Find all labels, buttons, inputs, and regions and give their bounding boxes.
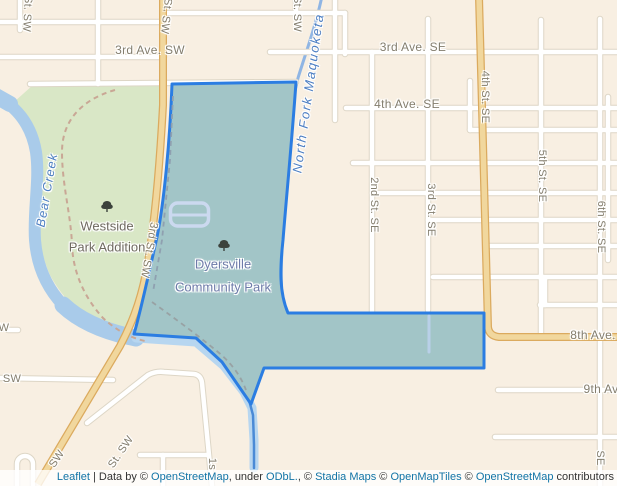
map-tiles	[0, 0, 617, 486]
attribution-text: | Data by ©	[90, 471, 151, 483]
attribution-text: , under	[229, 471, 266, 483]
openmaptiles-link[interactable]: OpenMapTiles	[390, 471, 461, 483]
attribution-bar: Leaflet | Data by © OpenStreetMap, under…	[0, 470, 617, 486]
community-park-highlight-polygon[interactable]	[134, 82, 484, 404]
attribution-text: ©	[462, 471, 476, 483]
odbl-link[interactable]: ODbL.	[266, 471, 298, 483]
attribution-text: ©	[376, 471, 390, 483]
map-canvas[interactable]: St. SWSt. SWSt. SW3rd Ave. SW3rd Ave. SE…	[0, 0, 617, 486]
openstreetmap-link-2[interactable]: OpenStreetMap	[476, 471, 554, 483]
openstreetmap-link[interactable]: OpenStreetMap	[151, 471, 229, 483]
attribution-text: contributors	[553, 471, 614, 483]
attribution-text: , ©	[298, 471, 315, 483]
leaflet-link[interactable]: Leaflet	[57, 471, 90, 483]
stadia-maps-link[interactable]: Stadia Maps	[315, 471, 376, 483]
